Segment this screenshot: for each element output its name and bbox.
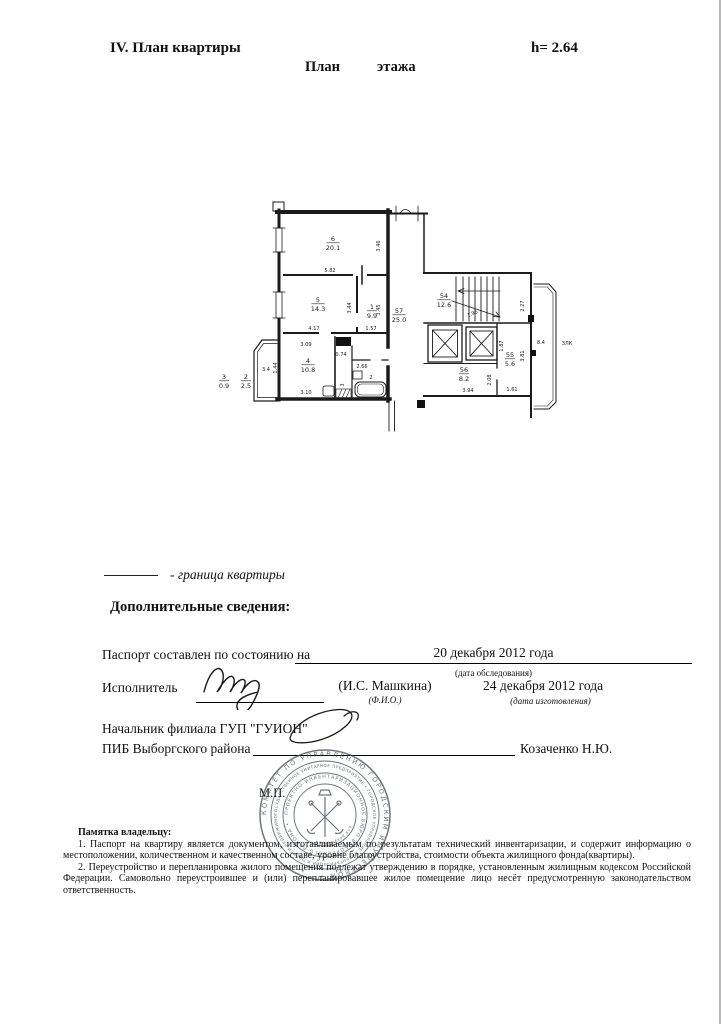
floor-plan: 620.1514.319.9410.85725.05412.6555.6568.… [210,192,588,437]
svg-text:56: 56 [460,366,468,374]
svg-text:3.81: 3.81 [520,350,526,361]
svg-text:2: 2 [244,373,248,381]
svg-text:4.17: 4.17 [308,326,319,332]
svg-text:2.66: 2.66 [356,364,367,370]
svg-text:3.45: 3.45 [376,304,382,315]
boundary-line-sample [104,575,158,576]
memo-item-2: 2. Переустройство и перепланировка жилог… [63,862,691,897]
svg-text:3.44: 3.44 [347,302,353,313]
svg-text:1: 1 [370,303,374,311]
plan-title-word1: План [305,59,340,76]
legend: - граница квартиры [104,567,285,583]
svg-text:8.2: 8.2 [459,375,469,383]
svg-text:3.46: 3.46 [376,240,382,251]
svg-text:12.6: 12.6 [437,301,451,309]
svg-text:10.8: 10.8 [301,366,315,374]
survey-date: 20 декабря 2012 года [295,645,692,664]
section-title: IV. План квартиры [110,40,241,57]
svg-text:54: 54 [440,292,448,300]
svg-text:57: 57 [395,307,403,315]
svg-text:1.57: 1.57 [365,326,376,332]
svg-text:8.4: 8.4 [537,340,545,346]
svg-text:20.1: 20.1 [326,244,340,252]
svg-text:3: 3 [222,373,226,381]
svg-text:0.9: 0.9 [219,382,229,390]
production-date: 24 декабря 2012 года [483,678,603,694]
svg-text:14.3: 14.3 [311,305,325,313]
svg-text:1.95: 1.95 [466,309,479,319]
svg-text:3.10: 3.10 [300,390,311,396]
survey-date-caption: (дата обследования) [295,668,692,678]
svg-text:3.4: 3.4 [262,367,270,373]
svg-text:2.08: 2.08 [487,374,493,385]
chief-title-line2: ПИБ Выборгского района [102,741,250,757]
svg-text:3.94: 3.94 [462,388,473,394]
legend-label: - граница квартиры [170,567,285,582]
svg-text:1.87: 1.87 [499,340,505,351]
chief-title-line1: Начальник филиала ГУП "ГУИОН" [102,721,308,737]
svg-text:3: 3 [340,383,346,386]
svg-text:25.0: 25.0 [392,316,406,324]
passport-page: IV. План квартиры h= 2.64 План этажа [0,0,721,1024]
ceiling-height-note: h= 2.64 [531,40,578,57]
svg-text:ЗЛК: ЗЛК [562,341,573,347]
memo-item-1: 1. Паспорт на квартиру является документ… [63,839,691,862]
svg-text:0.74: 0.74 [335,352,346,358]
svg-text:2.27: 2.27 [520,300,526,311]
production-date-caption: (дата изготовления) [483,696,618,706]
svg-text:6: 6 [331,235,335,243]
additional-info-title: Дополнительные сведения: [110,599,290,616]
svg-text:5.82: 5.82 [324,268,335,274]
floor-plan-labels: 620.1514.319.9410.85725.05412.6555.6568.… [219,235,573,396]
svg-text:3.09: 3.09 [300,342,311,348]
svg-text:2: 2 [369,375,372,381]
memo-title: Памятка владельцу: [63,827,691,839]
svg-text:1.61: 1.61 [506,387,517,393]
svg-text:4: 4 [306,357,310,365]
svg-text:55: 55 [506,351,514,359]
svg-text:1.44: 1.44 [273,362,279,373]
svg-text:2.5: 2.5 [241,382,251,390]
plan-title: План этажа [305,59,416,76]
executor-label: Исполнитель [102,680,178,696]
owner-memo: Памятка владельцу: 1. Паспорт на квартир… [63,827,691,897]
svg-text:5.6: 5.6 [505,360,515,368]
chief-name: Козаченко Н.Ю. [520,741,612,757]
executor-name: (И.С. Машкина) [330,678,440,694]
plan-title-word2: этажа [377,59,416,76]
svg-text:5: 5 [316,296,320,304]
